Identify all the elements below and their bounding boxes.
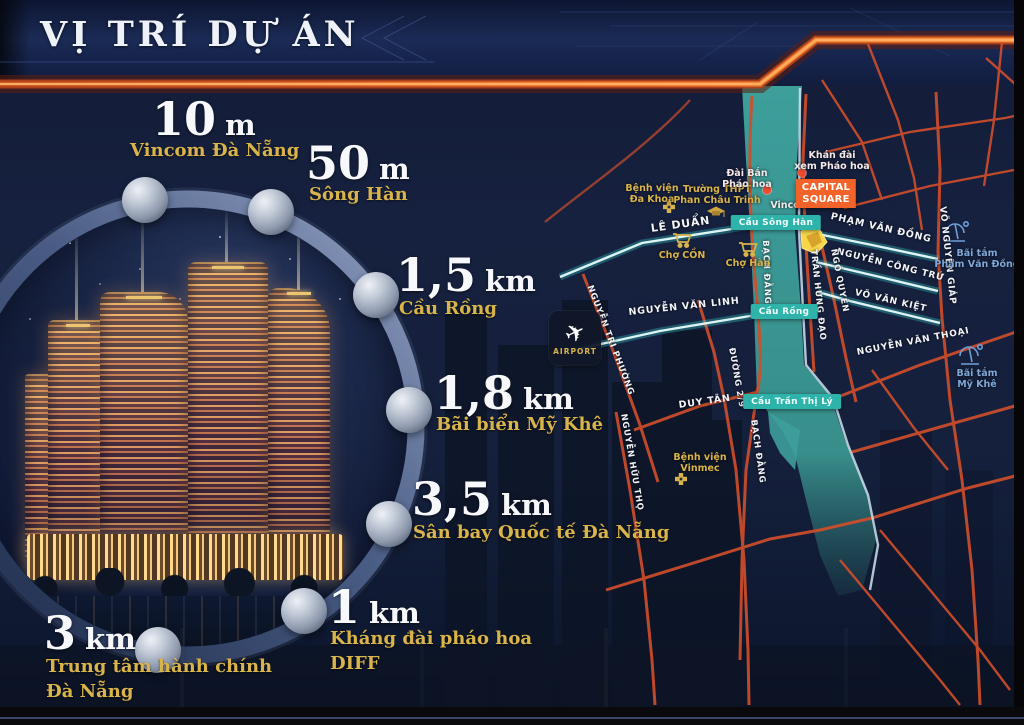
street-bach-dang-south: BẠCH ĐẰNG — [748, 419, 767, 484]
street-pham-van-dong: PHẠM VĂN ĐỒNG — [830, 211, 933, 245]
tower-4 — [268, 288, 330, 560]
bridge-badge-cau-tran-thi-ly: Cầu Trần Thị Lý — [743, 394, 841, 409]
poi-line: Bệnh viện — [625, 183, 678, 194]
distance-callout-diff: 1km Kháng đài pháo hoa DIFF — [328, 584, 420, 630]
poi-line: Mỹ Khê — [956, 379, 997, 390]
poi-line: SQUARE — [802, 194, 850, 206]
street-nguyen-van-linh: NGUYỄN VĂN LINH — [628, 295, 740, 318]
tower-1 — [48, 320, 108, 560]
hospital-icon — [675, 473, 687, 485]
poi-line: Bãi tắm — [934, 248, 1019, 259]
poi-line: Chợ CỒN — [659, 250, 706, 261]
distance-unit: m — [225, 108, 256, 142]
distance-callout-airport: 3,5km Sân bay Quốc tế Đà Nẵng — [412, 476, 552, 522]
market-cart-icon — [673, 234, 691, 247]
ring-dot — [366, 501, 412, 547]
ring-dot — [122, 177, 168, 223]
tower-3 — [188, 262, 268, 560]
bridge-badge-cau-rong: Cầu Rồng — [751, 304, 818, 319]
distance-unit: km — [485, 264, 536, 298]
poi-dai-ban-phao-hoa: Đài Bắn Pháo hoa — [722, 168, 772, 190]
poi-line: xem Pháo hoa — [794, 161, 869, 172]
poi-line: Đa Khoa — [625, 194, 678, 205]
distance-place: Cầu Rồng — [399, 298, 497, 319]
poi-line: Bãi tắm — [956, 368, 997, 379]
ring-dot — [386, 387, 432, 433]
frame-line — [0, 717, 1024, 719]
street-duy-tan: DUY TÂN — [678, 393, 731, 411]
light-beam — [297, 208, 300, 290]
poi-line: CAPITAL — [802, 182, 850, 194]
beach-icon — [960, 345, 982, 364]
poi-benh-vien-da-khoa: Bệnh viện Đa Khoa — [625, 183, 678, 205]
distance-callout-song-han: 50m Sông Hàn — [306, 140, 410, 186]
poi-bai-tam-my-khe: Bãi tắm Mỹ Khê — [956, 368, 997, 390]
distance-callout-my-khe: 1,8km Bãi biển Mỹ Khê — [434, 370, 574, 416]
bridge-badge-cau-song-han: Cầu Sông Hàn — [731, 215, 821, 230]
street-vo-van-kiet: VÕ VĂN KIỆT — [854, 288, 928, 314]
location-slide: 10m Vincom Đà Nẵng 50m Sông Hàn 1,5km Cầ… — [0, 0, 1024, 725]
street-nguyen-cong-tru: NGUYỄN CÔNG TRỨ — [836, 247, 946, 283]
street-tran-hung-dao: TRẦN HƯNG ĐẠO — [808, 249, 828, 341]
street-bach-dang-north: BẠCH ĐẰNG — [760, 240, 772, 305]
airport-marker: ✈ AIRPORT — [549, 311, 601, 365]
poi-line: Khán đài — [794, 150, 869, 161]
stars — [9, 228, 11, 230]
poi-bai-tam-pham-van-dong: Bãi tắm Phạm Văn Đồng — [934, 248, 1019, 270]
bottom-frame-bar — [0, 707, 1024, 725]
poi-cho-han: Chợ Hàn — [726, 258, 771, 269]
distance-value: 1,5 — [396, 252, 476, 298]
street-le-duan: LÊ DUẨN — [650, 214, 711, 235]
poi-line: Phan Châu Trinh — [673, 195, 760, 206]
poi-line: Pháo hoa — [722, 179, 772, 190]
light-beam — [75, 218, 78, 322]
distance-place: Sân bay Quốc tế Đà Nẵng — [413, 522, 669, 543]
distance-place: Bãi biển Mỹ Khê — [436, 414, 603, 435]
airplane-icon: ✈ — [561, 317, 589, 347]
poi-line: Phạm Văn Đồng — [934, 259, 1019, 270]
distance-value: 1 — [328, 584, 360, 630]
distance-value: 1,8 — [434, 370, 514, 416]
distance-callout-cau-rong: 1,5km Cầu Rồng — [396, 252, 536, 298]
top-band-shade — [0, 0, 30, 86]
tower-2 — [100, 292, 188, 560]
page-title: VỊ TRÍ DỰ ÁN — [40, 14, 360, 55]
ring-dot — [353, 272, 399, 318]
right-frame-strip — [1014, 0, 1024, 725]
distance-unit: m — [379, 152, 410, 186]
distance-unit: km — [501, 488, 552, 522]
distance-place: Sông Hàn — [309, 184, 408, 205]
poi-line: Chợ Hàn — [726, 258, 771, 269]
ring-dot — [248, 189, 294, 235]
poi-cho-con: Chợ CỒN — [659, 250, 706, 261]
poi-line: Vinmec — [673, 463, 726, 474]
light-beam — [225, 208, 228, 264]
poi-benh-vien-vinmec: Bệnh viện Vinmec — [673, 452, 726, 474]
distance-unit: km — [523, 382, 574, 416]
distance-unit: km — [369, 596, 420, 630]
distance-place: Vincom Đà Nẵng — [130, 140, 299, 161]
poi-capital-square-badge: CAPITAL SQUARE — [796, 179, 856, 208]
poi-khan-dai-xem-phao-hoa: Khán đài xem Pháo hoa — [794, 150, 869, 172]
water-streaks — [0, 628, 1024, 708]
poi-line: Đài Bắn — [722, 168, 772, 179]
poi-line: Bệnh viện — [673, 452, 726, 463]
distance-value: 10 — [152, 96, 216, 142]
market-cart-icon — [739, 243, 757, 256]
distance-callout-vincom: 10m Vincom Đà Nẵng — [152, 96, 256, 142]
distance-value: 3,5 — [412, 476, 492, 522]
distance-value: 50 — [306, 140, 370, 186]
street-nguyen-van-thoai: NGUYỄN VĂN THOẠI — [856, 326, 970, 358]
street-nguyen-huu-tho: NGUYỄN HỮU THỌ — [618, 413, 645, 512]
